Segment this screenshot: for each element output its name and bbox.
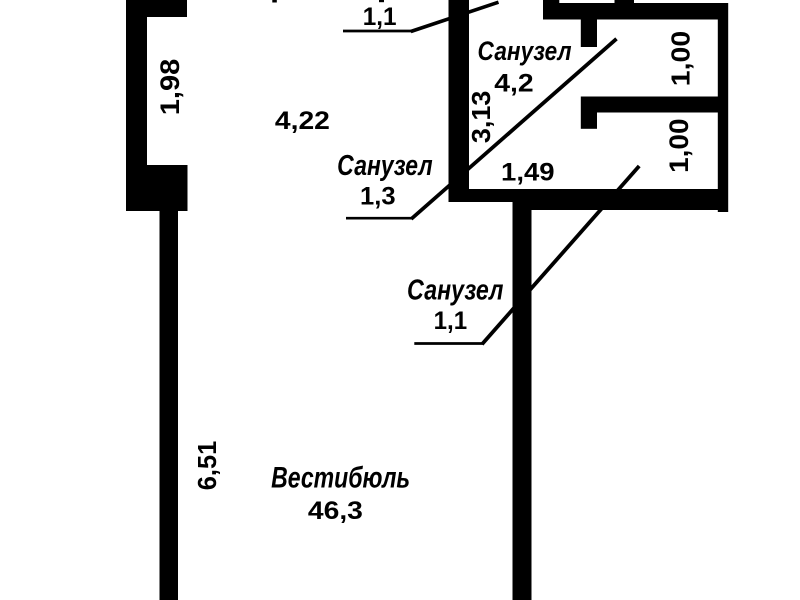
- svg-text:1,1: 1,1: [434, 307, 468, 335]
- svg-text:1,98: 1,98: [155, 59, 185, 116]
- svg-text:Вестибюль: Вестибюль: [271, 461, 410, 494]
- svg-text:Санузел: Санузел: [407, 275, 504, 307]
- svg-text:1,49: 1,49: [501, 158, 555, 186]
- svg-text:1,00: 1,00: [665, 31, 695, 87]
- svg-text:1,1: 1,1: [363, 3, 397, 31]
- svg-text:6,51: 6,51: [192, 441, 222, 491]
- svg-text:4,2: 4,2: [494, 69, 533, 97]
- svg-text:1,3: 1,3: [360, 183, 396, 211]
- svg-text:3,13: 3,13: [466, 91, 496, 143]
- svg-text:46,3: 46,3: [308, 497, 363, 525]
- svg-text:Санузел: Санузел: [337, 150, 433, 182]
- svg-text:1,00: 1,00: [664, 118, 694, 173]
- svg-text:Санузел: Санузел: [478, 36, 572, 66]
- svg-text:4,22: 4,22: [275, 107, 330, 135]
